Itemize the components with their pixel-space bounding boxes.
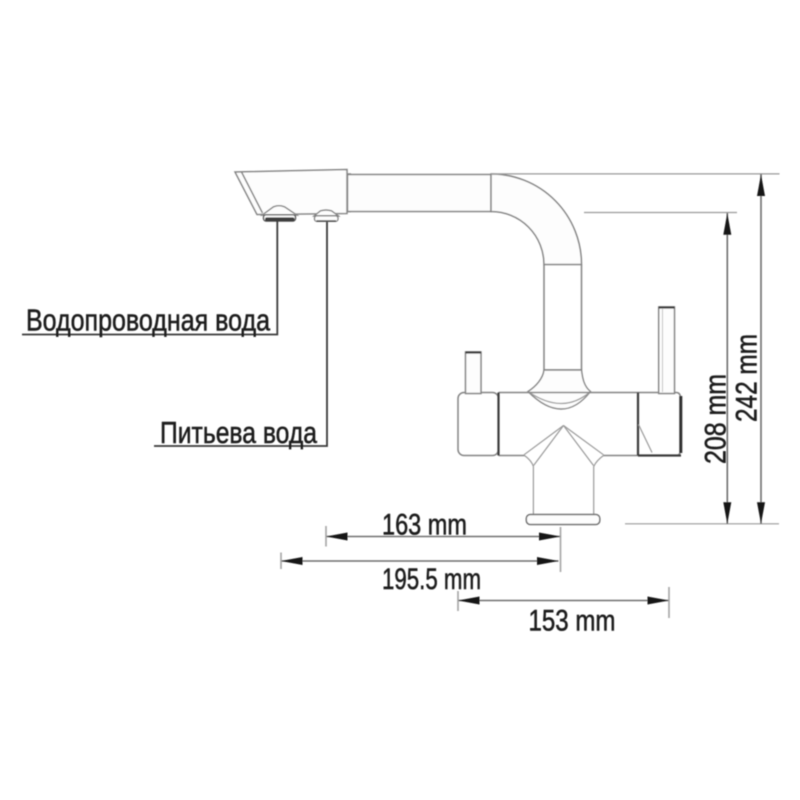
svg-text:163 mm: 163 mm bbox=[382, 509, 467, 542]
svg-text:153 mm: 153 mm bbox=[529, 605, 616, 638]
svg-text:195.5 mm: 195.5 mm bbox=[382, 563, 481, 596]
svg-text:242 mm: 242 mm bbox=[731, 334, 764, 422]
svg-text:208 mm: 208 mm bbox=[700, 374, 733, 464]
svg-text:Водопроводная вода: Водопроводная вода bbox=[26, 303, 271, 338]
svg-text:Питьева вода: Питьева вода bbox=[160, 415, 318, 450]
